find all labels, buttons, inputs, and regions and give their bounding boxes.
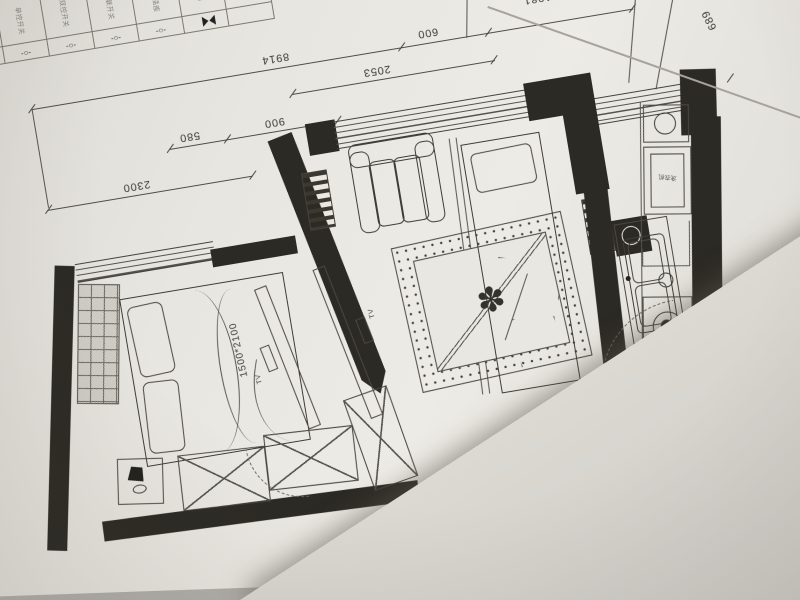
dim-600: 600 xyxy=(417,25,439,40)
dim-580: 580 xyxy=(178,129,200,144)
legend-symbol: -○- xyxy=(48,37,93,53)
sofa xyxy=(347,131,447,236)
dimension-line-2053 xyxy=(293,60,495,95)
dim-8914: 8914 xyxy=(261,50,290,66)
washer-label: 洗衣机 xyxy=(658,172,677,183)
wall-mid-corner-v xyxy=(557,73,610,195)
legend-symbol: -○- xyxy=(138,22,183,38)
legend-symbol: -○- xyxy=(93,30,138,46)
legend-label: 单控开关 xyxy=(13,6,27,35)
dim-tick xyxy=(727,73,735,83)
washing-machine: 洗衣机 xyxy=(643,146,692,214)
tv-label-living: TV xyxy=(367,308,376,319)
extension-line xyxy=(466,0,468,38)
legend-symbol: -○- xyxy=(3,45,48,61)
wall-bedroom-left xyxy=(47,266,74,551)
window-seat-grid xyxy=(77,284,120,404)
legend-label: 五孔插座 xyxy=(148,0,162,13)
legend-label: 三联开关 xyxy=(103,0,117,20)
photo-of-floor-plan: 吸顶灯 — 单控开关 -○- 双控开关 -○- 三联开关 -○- 五孔插座 -○… xyxy=(0,0,800,600)
dim-2300: 2300 xyxy=(122,178,151,194)
dimension-line-2300 xyxy=(48,176,252,211)
distribution-box-icon xyxy=(202,16,210,27)
cabinet-circle-icon xyxy=(654,112,676,134)
small-circle-fixture xyxy=(658,272,673,287)
legend-label: 配电箱 xyxy=(194,0,207,2)
legend-label: 双控开关 xyxy=(58,0,72,28)
kitchen-cabinet xyxy=(643,104,689,142)
faucet-icon xyxy=(625,276,631,282)
dim-2053: 2053 xyxy=(362,62,391,78)
wall-bedroom-stub xyxy=(210,235,298,267)
dim-1981: 1981 xyxy=(522,0,551,6)
nightstand xyxy=(117,458,164,505)
dim-689: 689 xyxy=(700,8,720,32)
dimension-line-689 xyxy=(655,0,677,89)
extension-line xyxy=(32,109,50,208)
legend-table: 吸顶灯 — 单控开关 -○- 双控开关 -○- 三联开关 -○- 五孔插座 -○… xyxy=(0,0,275,72)
range-hood xyxy=(642,220,690,266)
window-bedroom-top xyxy=(75,241,216,283)
dim-900: 900 xyxy=(263,115,285,130)
